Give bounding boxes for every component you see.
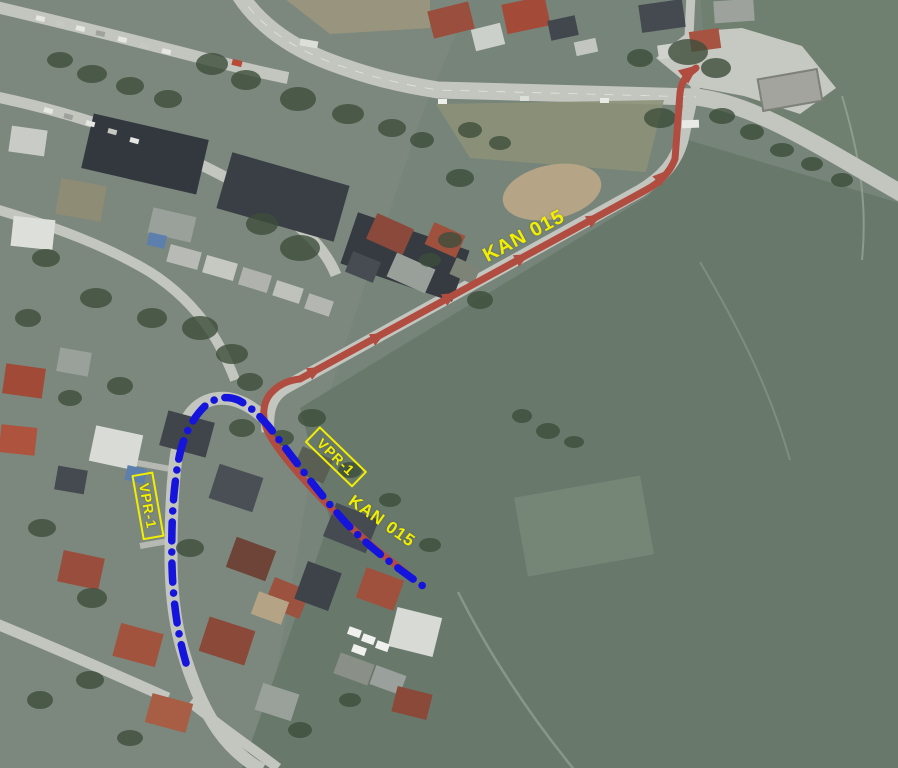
satellite-imagery	[0, 0, 898, 768]
aerial-map-view[interactable]: KAN 015 VPR-1 KAN 015 VPR-1	[0, 0, 898, 768]
map-canvas	[0, 0, 898, 768]
